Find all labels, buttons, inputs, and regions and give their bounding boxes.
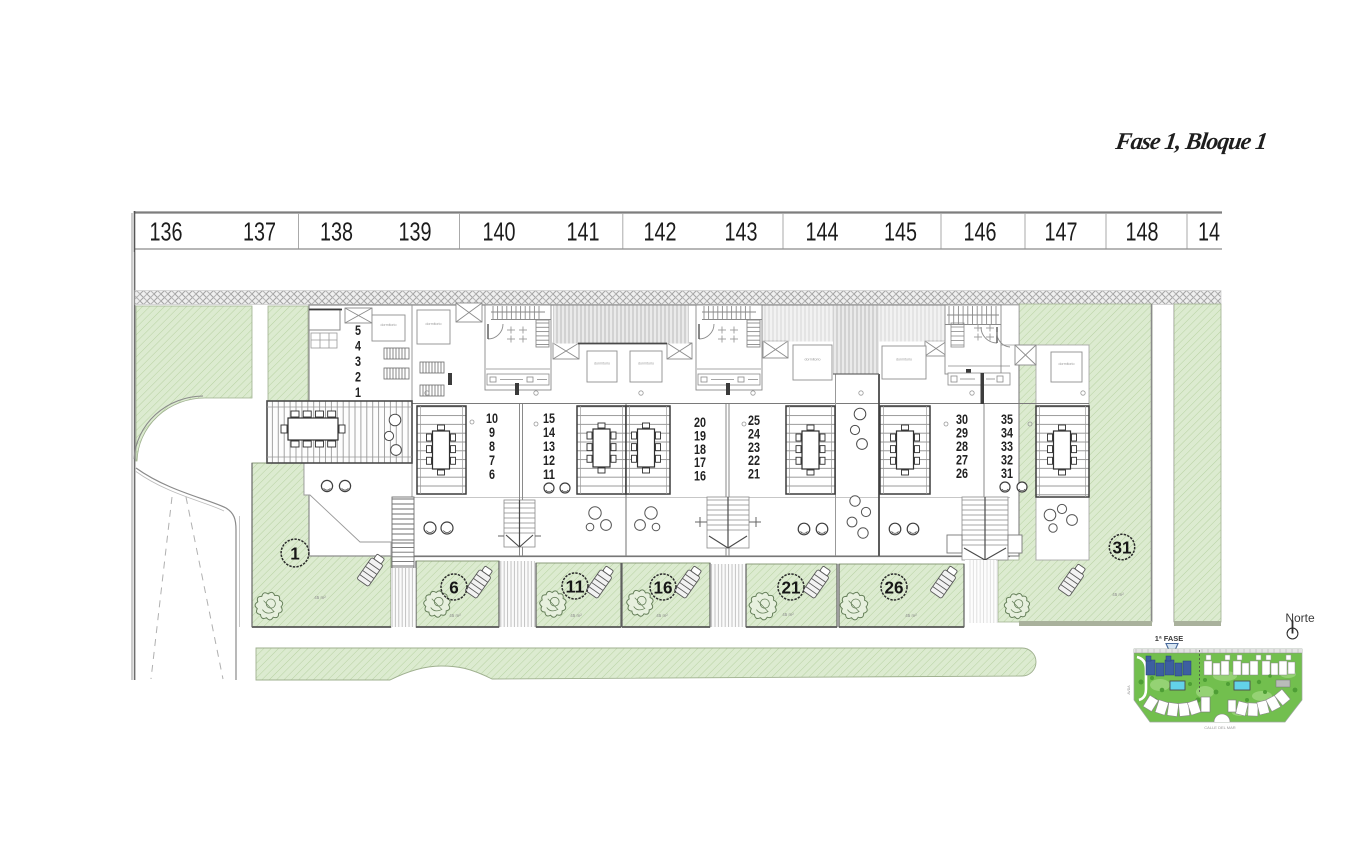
svg-text:9: 9 [489, 425, 495, 440]
svg-text:11: 11 [566, 576, 585, 596]
svg-text:45 m²: 45 m² [782, 612, 794, 617]
svg-text:140: 140 [483, 219, 516, 247]
svg-text:13: 13 [543, 439, 555, 454]
svg-text:14: 14 [543, 425, 555, 440]
svg-text:136: 136 [150, 219, 183, 247]
svg-text:dormitorio: dormitorio [381, 323, 397, 327]
svg-text:Fase 1, Bloque 1: Fase 1, Bloque 1 [1113, 129, 1268, 155]
svg-text:12: 12 [543, 453, 555, 468]
svg-text:21: 21 [782, 577, 801, 597]
svg-text:45 m²: 45 m² [656, 613, 668, 618]
svg-text:26: 26 [956, 466, 968, 481]
svg-text:137: 137 [243, 219, 276, 247]
svg-text:31: 31 [1001, 466, 1013, 481]
svg-text:45 m²: 45 m² [905, 613, 917, 618]
svg-text:dormitorio: dormitorio [426, 322, 442, 326]
svg-text:142: 142 [644, 219, 677, 247]
svg-text:10: 10 [486, 411, 498, 426]
svg-text:146: 146 [964, 219, 997, 247]
svg-text:45 m²: 45 m² [449, 613, 461, 618]
svg-text:6: 6 [489, 467, 495, 482]
svg-text:7: 7 [489, 453, 495, 468]
svg-text:Norte: Norte [1285, 611, 1315, 625]
svg-text:141: 141 [567, 219, 600, 247]
svg-text:26: 26 [885, 577, 904, 597]
svg-text:dormitorio: dormitorio [1059, 362, 1075, 366]
svg-text:1: 1 [355, 385, 361, 400]
svg-text:45 m²: 45 m² [314, 595, 326, 600]
svg-text:3: 3 [355, 354, 361, 369]
svg-text:15: 15 [543, 411, 555, 426]
svg-text:138: 138 [320, 219, 353, 247]
svg-text:1: 1 [290, 543, 300, 563]
svg-text:6: 6 [449, 577, 459, 597]
svg-text:4: 4 [355, 339, 361, 354]
svg-text:147: 147 [1045, 219, 1078, 247]
svg-text:dormitorio: dormitorio [638, 362, 654, 366]
svg-text:dormitorio: dormitorio [594, 362, 610, 366]
svg-text:5: 5 [355, 323, 361, 338]
svg-text:11: 11 [543, 467, 555, 482]
svg-text:45 m²: 45 m² [570, 613, 582, 618]
svg-text:16: 16 [654, 577, 673, 597]
svg-text:31: 31 [1113, 537, 1132, 557]
svg-text:8: 8 [489, 439, 495, 454]
svg-text:1ª FASE: 1ª FASE [1155, 634, 1184, 643]
svg-text:139: 139 [399, 219, 432, 247]
svg-text:AVDA: AVDA [1127, 685, 1131, 695]
svg-text:16: 16 [694, 469, 706, 484]
svg-text:21: 21 [748, 467, 760, 482]
svg-text:dormitorio: dormitorio [805, 358, 821, 362]
svg-text:143: 143 [725, 219, 758, 247]
svg-text:148: 148 [1126, 219, 1159, 247]
svg-text:145: 145 [884, 219, 917, 247]
svg-text:CALLE DEL MAR: CALLE DEL MAR [1204, 725, 1236, 730]
svg-text:45 m²: 45 m² [1112, 592, 1124, 597]
svg-text:dormitorio: dormitorio [896, 358, 912, 362]
svg-text:14: 14 [1198, 219, 1220, 247]
svg-text:144: 144 [806, 219, 839, 247]
svg-text:2: 2 [355, 370, 361, 385]
